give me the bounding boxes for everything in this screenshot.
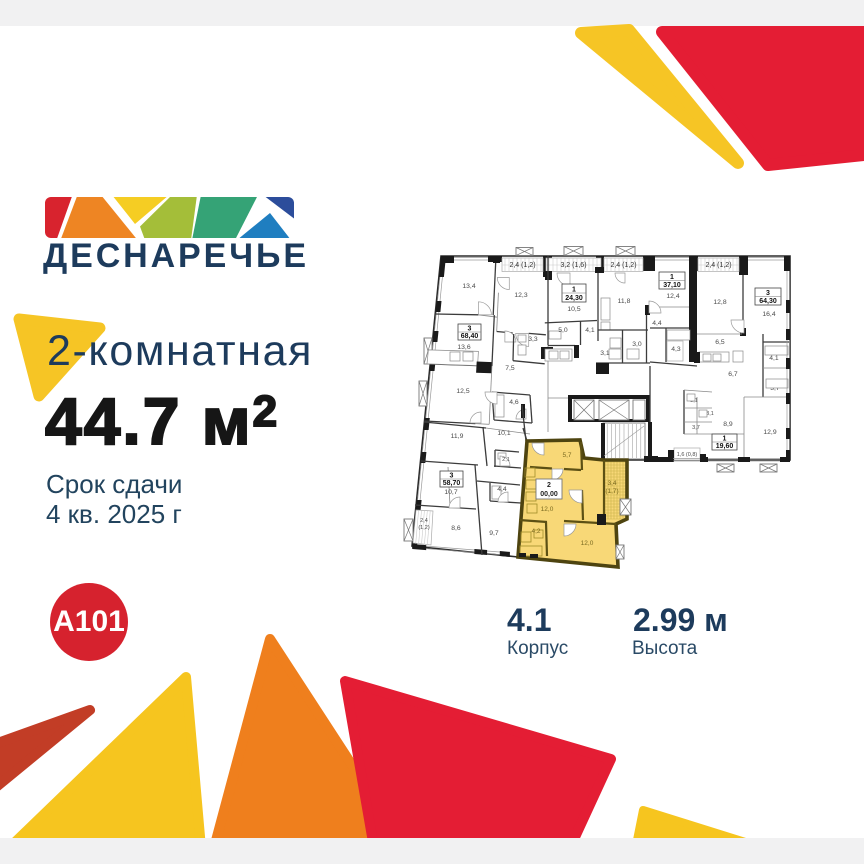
svg-text:1: 1 (572, 287, 576, 294)
svg-text:2,4 (1,2): 2,4 (1,2) (509, 262, 535, 269)
svg-text:37,10: 37,10 (663, 282, 681, 289)
svg-text:64,30: 64,30 (759, 298, 777, 305)
svg-text:3: 3 (468, 326, 472, 333)
svg-text:3: 3 (766, 290, 770, 297)
svg-text:00,00: 00,00 (540, 491, 558, 498)
svg-text:(1,7): (1,7) (605, 488, 618, 495)
svg-text:7,5: 7,5 (505, 365, 515, 372)
svg-text:58,70: 58,70 (443, 480, 461, 487)
svg-text:5,7: 5,7 (562, 452, 571, 459)
svg-text:68,40: 68,40 (461, 333, 479, 340)
svg-text:4,4: 4,4 (497, 486, 507, 493)
svg-text:4,3: 4,3 (671, 346, 681, 353)
svg-text:2: 2 (547, 482, 551, 489)
svg-text:3: 3 (450, 473, 454, 480)
svg-text:3,3: 3,3 (528, 336, 538, 343)
svg-text:12,8: 12,8 (713, 299, 726, 306)
svg-text:4,4: 4,4 (652, 320, 662, 327)
svg-text:4,6: 4,6 (509, 399, 519, 406)
svg-text:3,7: 3,7 (692, 425, 700, 431)
svg-text:2,4 (1,2): 2,4 (1,2) (705, 262, 731, 269)
svg-text:1,6 (0,8): 1,6 (0,8) (677, 452, 698, 458)
svg-text:13,4: 13,4 (462, 283, 475, 290)
svg-text:9,7: 9,7 (489, 530, 499, 537)
svg-text:16,4: 16,4 (762, 311, 775, 318)
svg-text:13,6: 13,6 (457, 344, 470, 351)
svg-text:12,4: 12,4 (666, 293, 679, 300)
svg-text:11,8: 11,8 (618, 298, 631, 305)
svg-text:12,3: 12,3 (514, 292, 527, 299)
svg-text:12,0: 12,0 (541, 506, 554, 513)
svg-text:11,9: 11,9 (451, 433, 464, 440)
svg-text:1: 1 (670, 274, 674, 281)
svg-text:1: 1 (723, 436, 727, 443)
svg-text:6,7: 6,7 (728, 371, 738, 378)
svg-text:4,2: 4,2 (531, 528, 540, 535)
svg-text:10,7: 10,7 (444, 489, 457, 496)
svg-text:3,0: 3,0 (632, 341, 642, 348)
svg-text:4,1: 4,1 (769, 355, 779, 362)
svg-text:2,4: 2,4 (420, 518, 428, 524)
svg-text:4,1: 4,1 (585, 327, 595, 334)
svg-text:12,9: 12,9 (763, 429, 776, 436)
svg-text:8,9: 8,9 (723, 421, 733, 428)
svg-text:5,0: 5,0 (558, 327, 568, 334)
svg-text:3,1: 3,1 (600, 350, 610, 357)
svg-text:6,5: 6,5 (715, 339, 725, 346)
svg-text:3,4: 3,4 (607, 480, 616, 487)
svg-text:8,6: 8,6 (451, 525, 461, 532)
svg-text:10,5: 10,5 (567, 306, 580, 313)
svg-text:10,1: 10,1 (497, 430, 510, 437)
svg-text:3,2 (1,6): 3,2 (1,6) (560, 262, 586, 269)
svg-text:2,1: 2,1 (502, 457, 510, 463)
svg-text:24,30: 24,30 (565, 295, 583, 302)
svg-text:12,5: 12,5 (456, 388, 469, 395)
svg-text:2,4 (1,2): 2,4 (1,2) (610, 262, 636, 269)
svg-text:12,0: 12,0 (581, 540, 594, 547)
svg-text:(1,2): (1,2) (418, 525, 429, 531)
svg-text:19,60: 19,60 (716, 443, 734, 450)
